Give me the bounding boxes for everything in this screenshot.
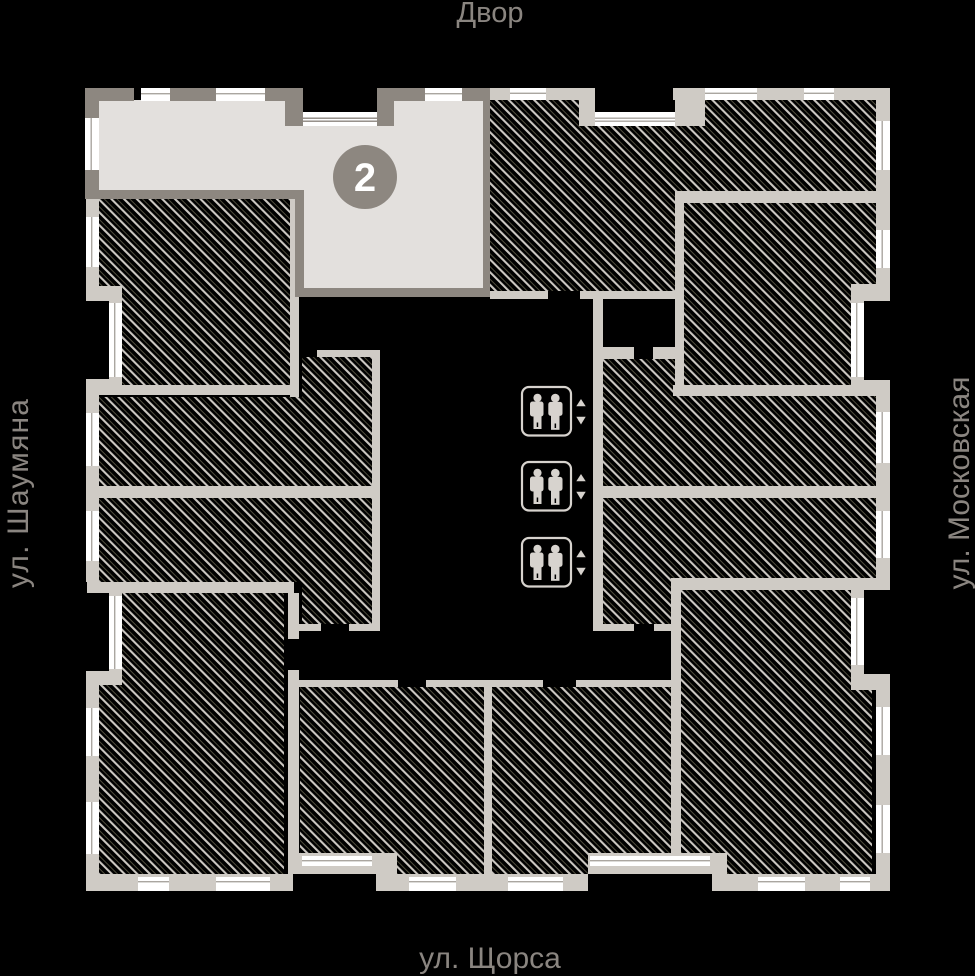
svg-text:ул. Московская: ул. Московская	[943, 377, 975, 590]
svg-text:ул. Шаумяна: ул. Шаумяна	[2, 398, 35, 588]
svg-text:ул. Щорса: ул. Щорса	[419, 942, 561, 975]
svg-text:2: 2	[354, 156, 376, 200]
svg-text:Двор: Двор	[457, 0, 524, 29]
